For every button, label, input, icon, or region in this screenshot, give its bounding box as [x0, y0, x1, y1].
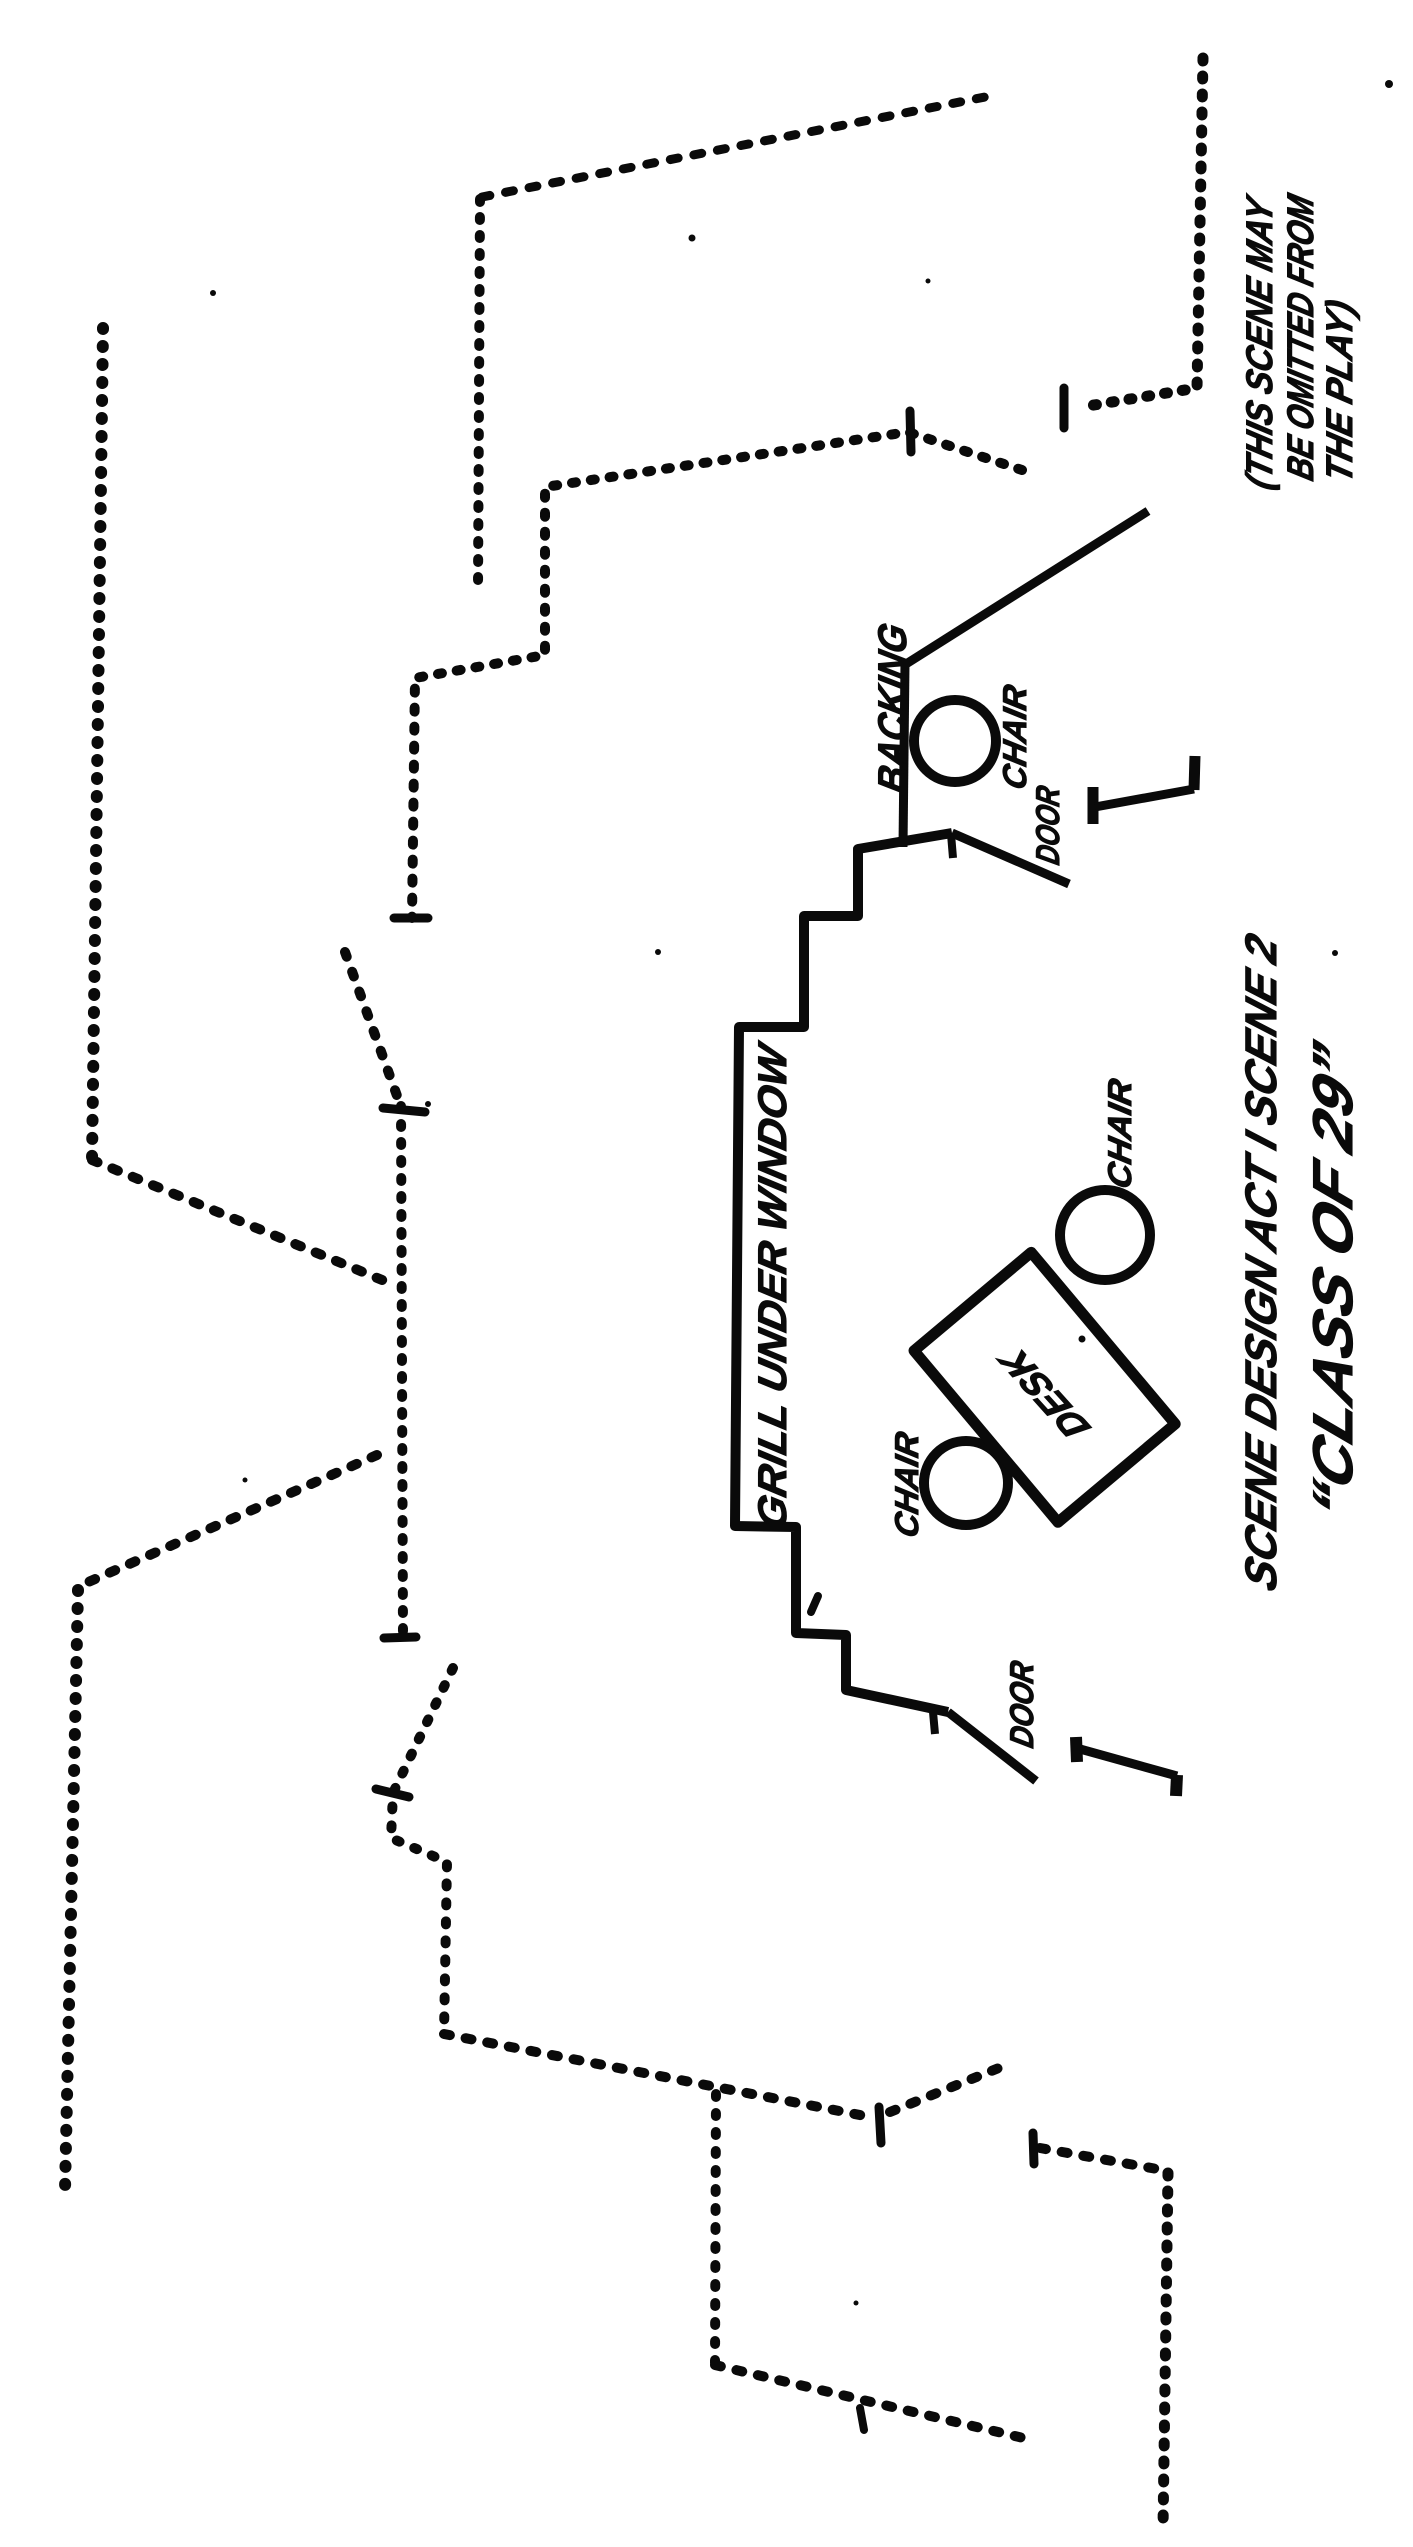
svg-text:“CLASS OF 29”: “CLASS OF 29”: [1303, 1035, 1365, 1528]
svg-text:CHAIR: CHAIR: [889, 1429, 926, 1541]
svg-text:(THIS SCENE MAY: (THIS SCENE MAY: [1239, 191, 1280, 493]
svg-text:CHAIR: CHAIR: [997, 682, 1034, 793]
svg-text:BACKING: BACKING: [869, 619, 914, 797]
svg-text:GRILL UNDER WINDOW: GRILL UNDER WINDOW: [749, 1037, 794, 1533]
svg-text:CHAIR: CHAIR: [1102, 1076, 1139, 1192]
svg-text:SCENE DESIGN ACT I SCENE 2: SCENE DESIGN ACT I SCENE 2: [1236, 928, 1286, 1596]
svg-text:BE OMITTED FROM: BE OMITTED FROM: [1280, 190, 1321, 484]
svg-text:DOOR: DOOR: [1030, 783, 1067, 868]
svg-text:DOOR: DOOR: [1004, 1658, 1041, 1751]
svg-text:THE PLAY): THE PLAY): [1319, 296, 1360, 486]
